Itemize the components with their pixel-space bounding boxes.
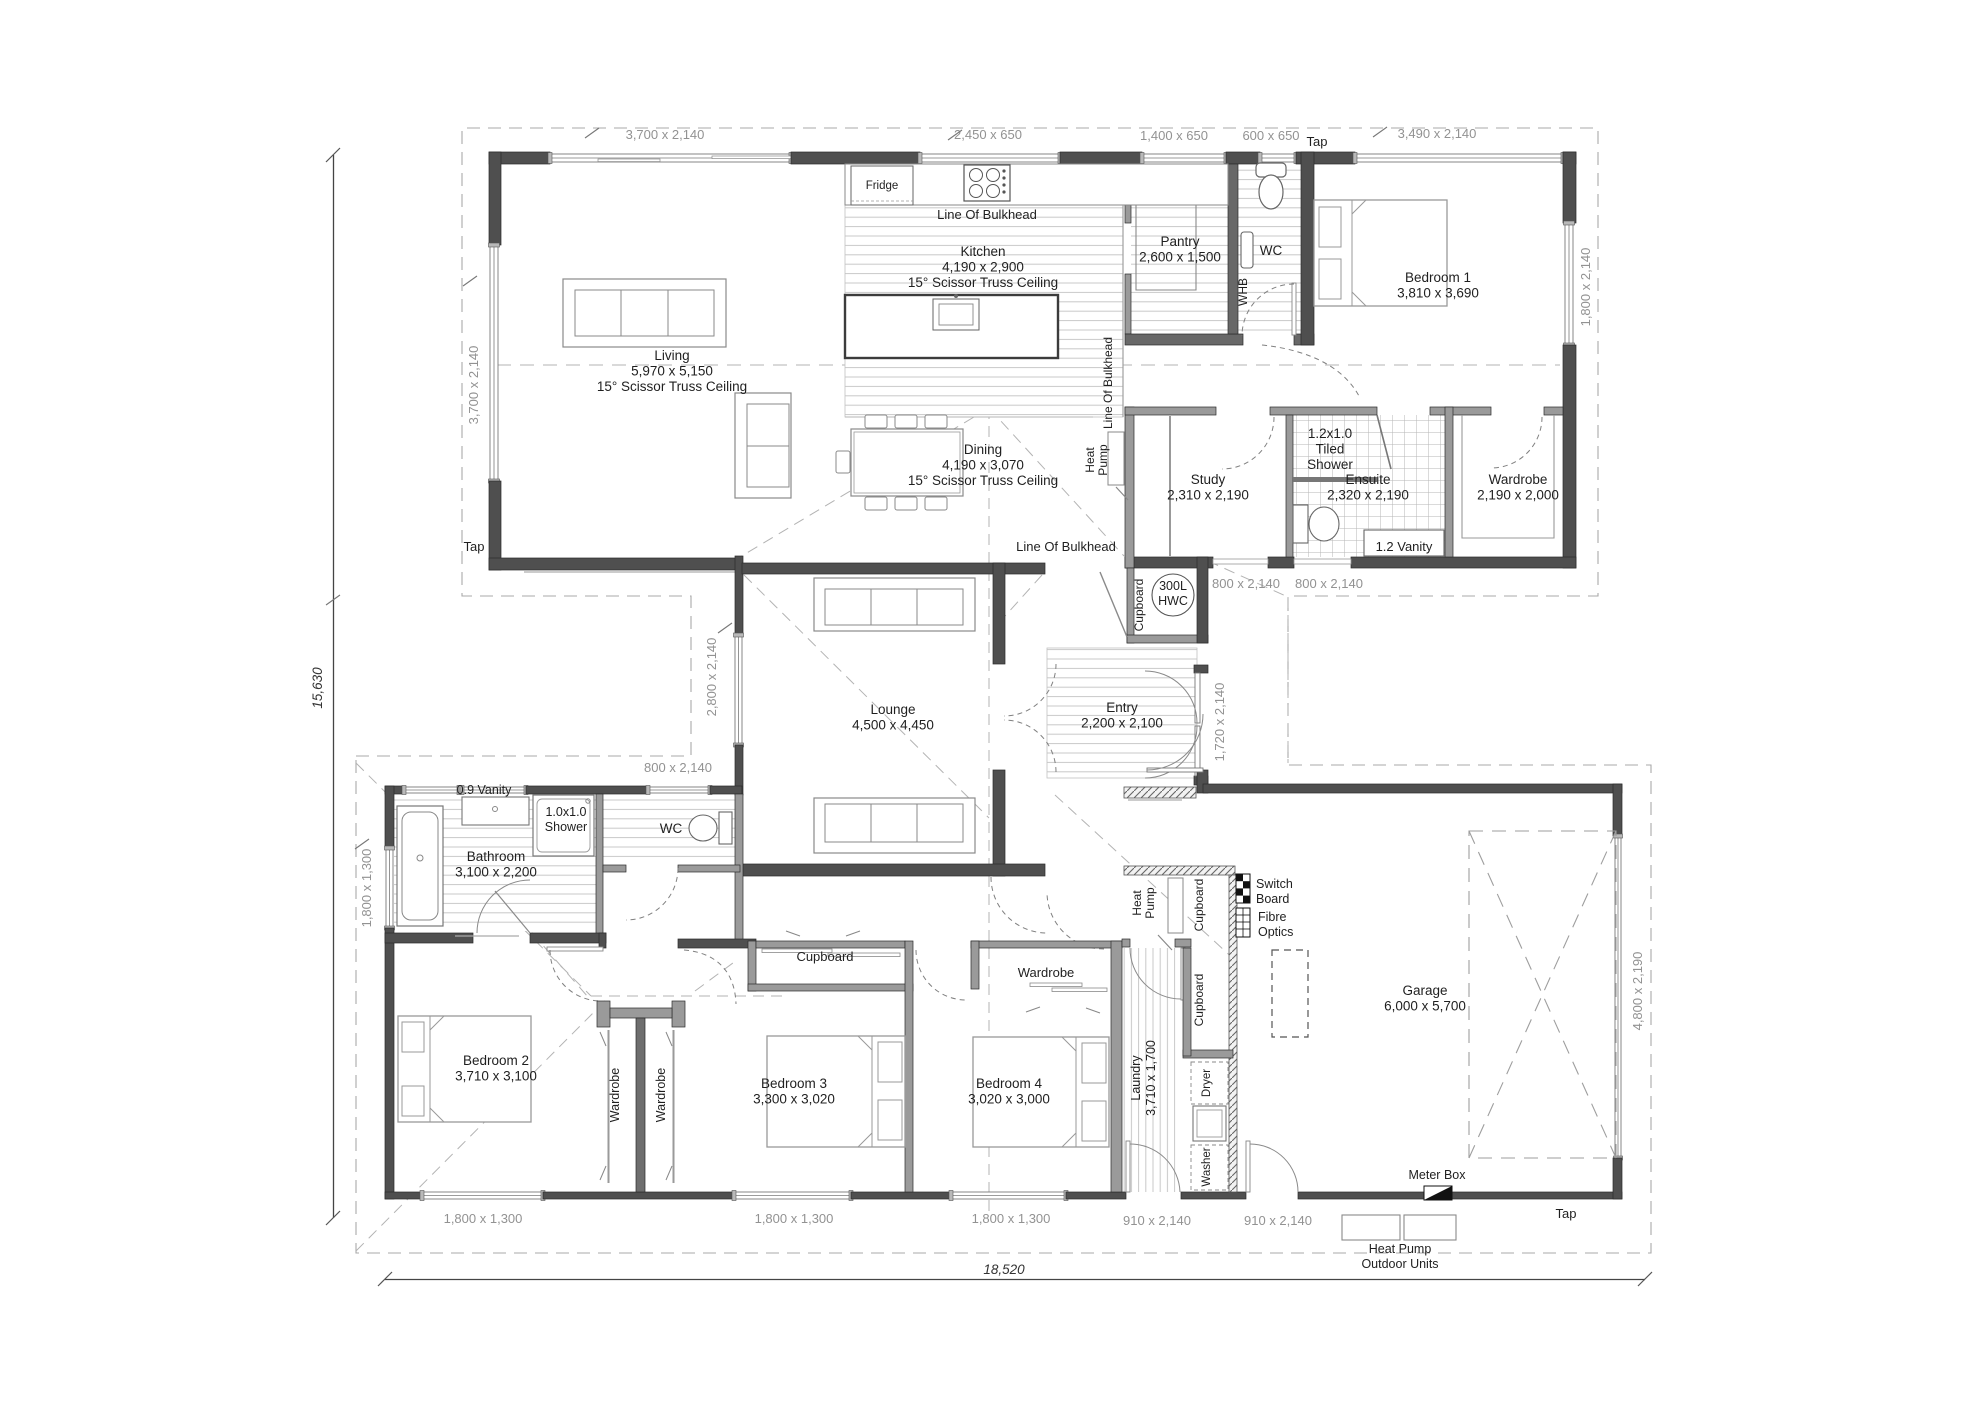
svg-text:2,200 x 2,100: 2,200 x 2,100 xyxy=(1081,716,1163,731)
svg-text:2,310 x 2,190: 2,310 x 2,190 xyxy=(1167,488,1249,503)
svg-text:Kitchen: Kitchen xyxy=(960,244,1005,259)
svg-text:HeatPump: HeatPump xyxy=(1130,887,1157,919)
svg-text:Wardrobe: Wardrobe xyxy=(608,1068,622,1122)
svg-text:Dryer: Dryer xyxy=(1201,1069,1213,1097)
svg-text:3,710 x 3,100: 3,710 x 3,100 xyxy=(455,1069,537,1084)
svg-text:1,800 x 2,140: 1,800 x 2,140 xyxy=(1578,248,1593,327)
svg-text:WHB: WHB xyxy=(1236,278,1250,306)
svg-text:Cupboard: Cupboard xyxy=(796,949,853,964)
svg-text:3,700 x 2,140: 3,700 x 2,140 xyxy=(466,346,481,425)
svg-text:1.0x1.0: 1.0x1.0 xyxy=(545,805,586,819)
svg-text:1,800 x 1,300: 1,800 x 1,300 xyxy=(444,1211,523,1226)
svg-text:Shower: Shower xyxy=(1307,457,1353,472)
svg-text:Ensuite: Ensuite xyxy=(1345,472,1390,487)
svg-text:Heat Pump: Heat Pump xyxy=(1369,1242,1432,1256)
svg-text:WC: WC xyxy=(1260,243,1283,258)
svg-text:4,190 x 2,900: 4,190 x 2,900 xyxy=(942,260,1024,275)
svg-text:800 x 2,140: 800 x 2,140 xyxy=(1212,576,1280,591)
svg-text:3,700 x 2,140: 3,700 x 2,140 xyxy=(626,127,705,142)
svg-text:Line Of Bulkhead: Line Of Bulkhead xyxy=(937,207,1037,222)
svg-text:1,800 x 1,300: 1,800 x 1,300 xyxy=(972,1211,1051,1226)
svg-text:Fridge: Fridge xyxy=(866,180,899,192)
svg-text:Washer: Washer xyxy=(1201,1147,1213,1186)
svg-text:Wardrobe: Wardrobe xyxy=(1489,472,1548,487)
svg-text:Living: Living xyxy=(654,348,689,363)
svg-text:Entry: Entry xyxy=(1106,700,1138,715)
svg-text:15° Scissor Truss Ceiling: 15° Scissor Truss Ceiling xyxy=(597,379,747,394)
svg-text:3,300 x 3,020: 3,300 x 3,020 xyxy=(753,1092,835,1107)
svg-text:5,970 x 5,150: 5,970 x 5,150 xyxy=(631,364,713,379)
svg-text:Garage: Garage xyxy=(1402,983,1447,998)
svg-text:Dining: Dining xyxy=(964,442,1002,457)
svg-text:Meter Box: Meter Box xyxy=(1409,1168,1467,1182)
svg-text:4,800 x 2,190: 4,800 x 2,190 xyxy=(1630,952,1645,1031)
svg-text:2,800 x 2,140: 2,800 x 2,140 xyxy=(704,638,719,717)
svg-text:1.2x1.0: 1.2x1.0 xyxy=(1308,426,1352,441)
svg-text:4,500 x 4,450: 4,500 x 4,450 xyxy=(852,718,934,733)
svg-text:300L: 300L xyxy=(1159,579,1187,593)
svg-text:Tiled: Tiled xyxy=(1316,442,1345,457)
svg-text:4,190 x 3,070: 4,190 x 3,070 xyxy=(942,458,1024,473)
svg-text:Bedroom 2: Bedroom 2 xyxy=(463,1053,529,1068)
svg-text:HeatPump: HeatPump xyxy=(1083,444,1110,476)
svg-text:800 x 2,140: 800 x 2,140 xyxy=(1295,576,1363,591)
svg-text:2,190 x 2,000: 2,190 x 2,000 xyxy=(1477,488,1559,503)
svg-text:Tap: Tap xyxy=(1307,134,1328,149)
svg-text:18,520: 18,520 xyxy=(983,1262,1025,1277)
svg-text:Wardrobe: Wardrobe xyxy=(1018,965,1075,980)
svg-text:1,720 x 2,140: 1,720 x 2,140 xyxy=(1212,683,1227,762)
svg-text:Cupboard: Cupboard xyxy=(1192,974,1206,1027)
svg-text:800 x 2,140: 800 x 2,140 xyxy=(644,760,712,775)
svg-text:3,100 x 2,200: 3,100 x 2,200 xyxy=(455,865,537,880)
svg-text:2,600 x 1,500: 2,600 x 1,500 xyxy=(1139,250,1221,265)
svg-text:SwitchBoard: SwitchBoard xyxy=(1256,877,1293,906)
svg-text:Line Of Bulkhead: Line Of Bulkhead xyxy=(1016,539,1116,554)
svg-text:2,320 x 2,190: 2,320 x 2,190 xyxy=(1327,488,1409,503)
svg-text:WC: WC xyxy=(660,821,683,836)
svg-text:Bedroom 1: Bedroom 1 xyxy=(1405,270,1471,285)
svg-text:Bathroom: Bathroom xyxy=(467,849,526,864)
svg-text:1,400 x 650: 1,400 x 650 xyxy=(1140,128,1208,143)
svg-text:1.2 Vanity: 1.2 Vanity xyxy=(1376,539,1433,554)
svg-text:600 x 650: 600 x 650 xyxy=(1242,128,1299,143)
svg-text:Line Of Bulkhead: Line Of Bulkhead xyxy=(1101,337,1115,429)
svg-text:1,800 x 1,300: 1,800 x 1,300 xyxy=(755,1211,834,1226)
svg-text:3,020 x 3,000: 3,020 x 3,000 xyxy=(968,1092,1050,1107)
svg-text:Wardrobe: Wardrobe xyxy=(654,1068,668,1122)
svg-text:Study: Study xyxy=(1191,472,1226,487)
svg-text:Tap: Tap xyxy=(1556,1206,1577,1221)
svg-text:Tap: Tap xyxy=(464,539,485,554)
svg-text:0.9 Vanity: 0.9 Vanity xyxy=(457,783,512,797)
svg-text:910 x 2,140: 910 x 2,140 xyxy=(1123,1213,1191,1228)
svg-text:Lounge: Lounge xyxy=(870,702,915,717)
svg-text:1,800 x 1,300: 1,800 x 1,300 xyxy=(359,849,374,928)
svg-text:6,000 x 5,700: 6,000 x 5,700 xyxy=(1384,999,1466,1014)
svg-text:Cupboard: Cupboard xyxy=(1192,879,1206,932)
svg-text:15° Scissor Truss Ceiling: 15° Scissor Truss Ceiling xyxy=(908,473,1058,488)
svg-text:3,490 x 2,140: 3,490 x 2,140 xyxy=(1398,126,1477,141)
svg-text:Bedroom 3: Bedroom 3 xyxy=(761,1076,827,1091)
svg-text:15,630: 15,630 xyxy=(310,667,325,709)
svg-text:HWC: HWC xyxy=(1158,594,1188,608)
svg-text:Cupboard: Cupboard xyxy=(1132,579,1146,632)
svg-text:2,450 x 650: 2,450 x 650 xyxy=(954,127,1022,142)
svg-text:910 x 2,140: 910 x 2,140 xyxy=(1244,1213,1312,1228)
svg-text:Bedroom 4: Bedroom 4 xyxy=(976,1076,1043,1091)
svg-text:Outdoor Units: Outdoor Units xyxy=(1361,1257,1438,1271)
svg-text:Shower: Shower xyxy=(545,820,587,834)
svg-text:3,810 x 3,690: 3,810 x 3,690 xyxy=(1397,286,1479,301)
svg-text:15° Scissor Truss Ceiling: 15° Scissor Truss Ceiling xyxy=(908,275,1058,290)
svg-text:Pantry: Pantry xyxy=(1160,234,1199,249)
